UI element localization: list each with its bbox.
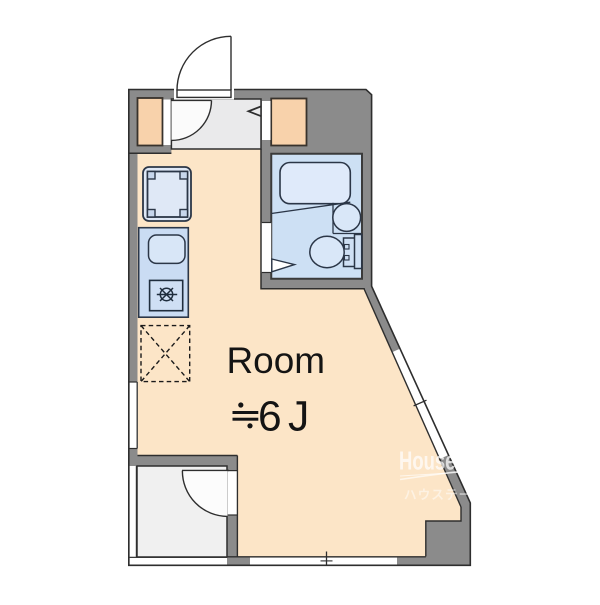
svg-text:J: J: [288, 394, 309, 441]
svg-text:Room: Room: [227, 339, 326, 381]
svg-text:ハウステーションネット: ハウステーションネット: [404, 488, 554, 502]
svg-text:6: 6: [258, 394, 282, 441]
